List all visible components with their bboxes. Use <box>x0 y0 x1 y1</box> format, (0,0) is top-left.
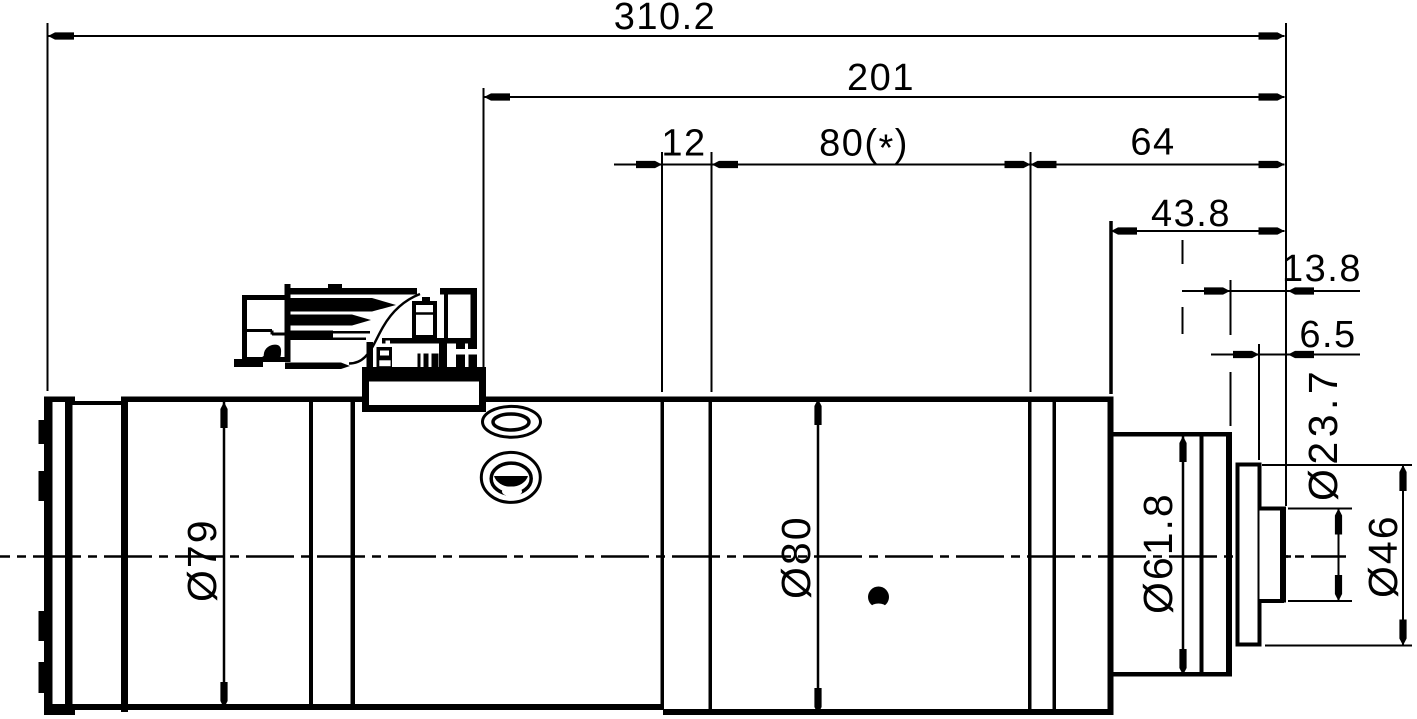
svg-text:64: 64 <box>1130 122 1175 164</box>
svg-text:Ø46: Ø46 <box>1360 515 1406 599</box>
svg-text:201: 201 <box>847 57 915 99</box>
svg-text:Ø23.7: Ø23.7 <box>1300 367 1346 501</box>
svg-text:13.8: 13.8 <box>1282 248 1362 290</box>
svg-text:12: 12 <box>661 123 706 165</box>
svg-text:Ø61.8: Ø61.8 <box>1135 492 1181 614</box>
svg-text:43.8: 43.8 <box>1151 193 1231 235</box>
svg-text:Ø79: Ø79 <box>179 519 225 603</box>
svg-text:6.5: 6.5 <box>1299 314 1356 356</box>
svg-text:80(*): 80(*) <box>819 123 909 170</box>
svg-text:Ø80: Ø80 <box>773 516 819 600</box>
svg-text:310.2: 310.2 <box>614 0 717 38</box>
